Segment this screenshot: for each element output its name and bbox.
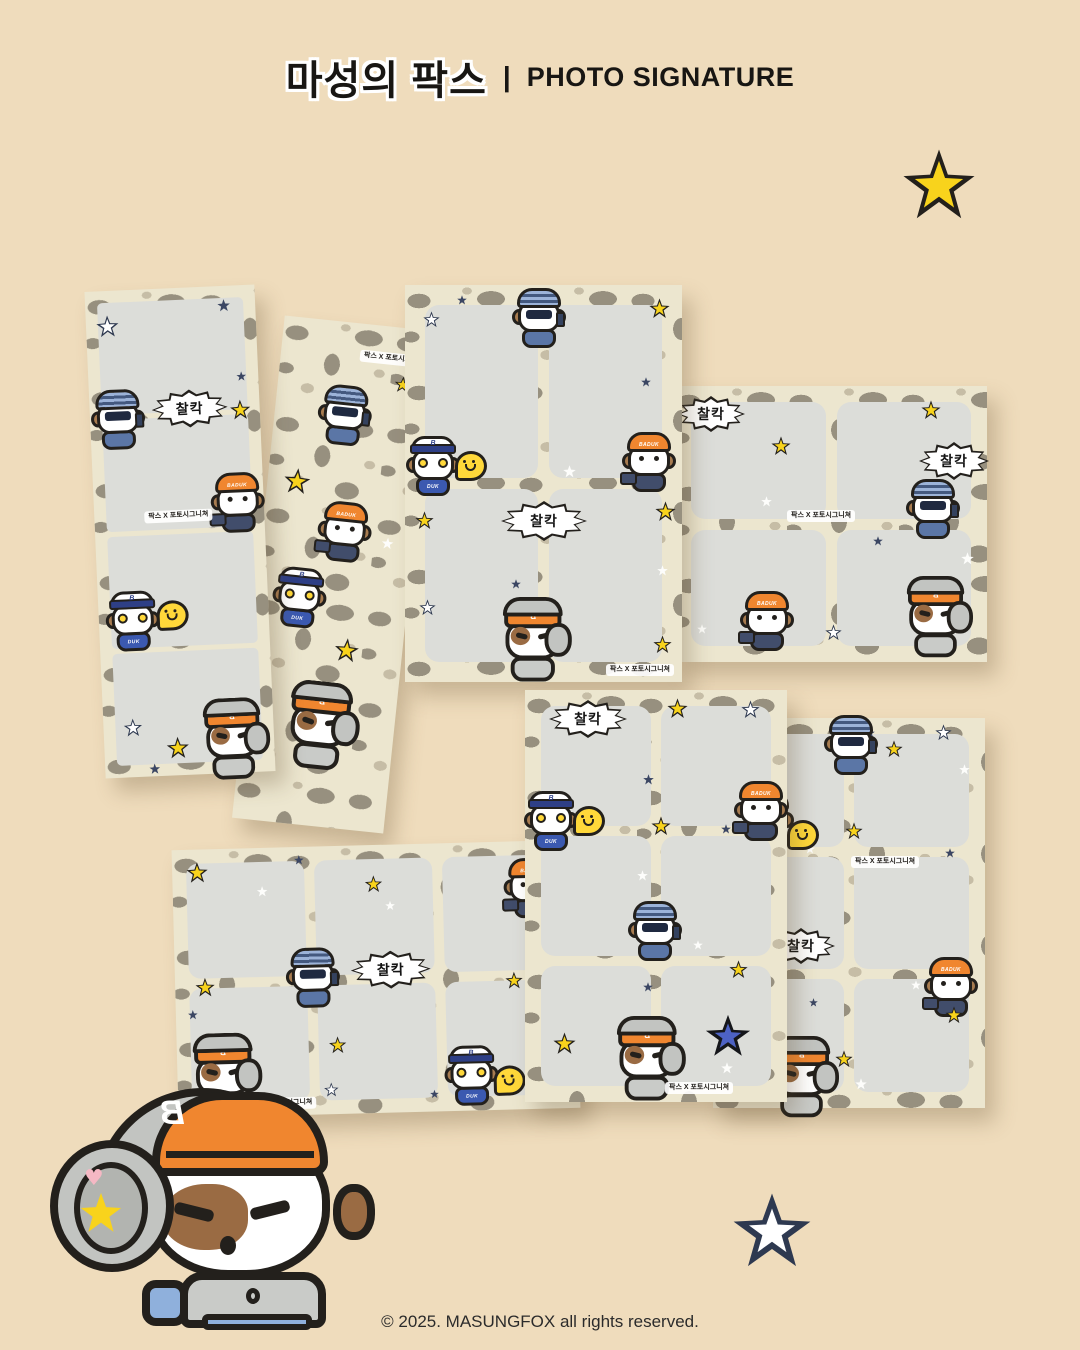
orange-cap-icon: B: [152, 1092, 328, 1176]
star-icon: [935, 724, 952, 741]
mouth: [220, 1236, 236, 1255]
star-icon: [741, 700, 760, 719]
photo-strip-front-card: 찰칵 BADUK 팍스 X 포토시그니쳐 BDUK B: [84, 285, 275, 779]
beanie-dog-character: [907, 478, 959, 542]
mini-star-icon: [149, 763, 160, 774]
dog-ear-icon: [333, 1184, 375, 1240]
shutter-bubble: 찰칵: [350, 950, 431, 990]
star-icon: [729, 960, 748, 979]
shutter-label: 찰칵: [940, 451, 968, 471]
star-icon: [845, 822, 863, 840]
collab-label: 팍스 X 포토시그니쳐: [665, 1082, 733, 1094]
star-icon: [123, 718, 143, 738]
headphone-dog-character: B: [903, 576, 968, 656]
hood-drawstring: [246, 1288, 260, 1304]
star-icon: [705, 1014, 751, 1058]
shutter-label: 찰칵: [574, 709, 602, 729]
star-icon: [553, 1032, 576, 1055]
baduk-dog-character: BADUK: [315, 498, 373, 567]
beanie-dog-character: [825, 714, 877, 778]
star-icon: [655, 501, 676, 522]
shutter-label: 찰칵: [787, 936, 815, 956]
title-korean: 마성의 팍스: [286, 48, 487, 106]
beanie-dog-character: [91, 387, 146, 453]
mini-star-icon: [457, 295, 467, 305]
cap-letter: B: [160, 1094, 185, 1133]
frame-6cut-landscape-card: BADUK 찰칵 B BDUK 팍스 X 포토시그니쳐: [172, 840, 581, 1118]
star-icon: [505, 971, 523, 989]
photo-cell: [854, 857, 969, 970]
star-icon: [653, 635, 672, 654]
duk-dog-character: BDUK: [106, 589, 161, 655]
star-icon: [835, 1050, 853, 1068]
shutter-bubble: 찰칵: [549, 700, 627, 738]
page-title: 마성의 팍스 | PHOTO SIGNATURE: [0, 48, 1080, 106]
star-icon: [333, 636, 360, 663]
collab-label: 팍스 X 포토시그니쳐: [606, 664, 674, 676]
shutter-label: 찰칵: [175, 398, 204, 419]
beanie-dog-character: [286, 946, 340, 1011]
star-icon: [921, 400, 941, 420]
smiley-bubble-icon: [787, 820, 819, 850]
headphone-dog-character: B: [280, 678, 359, 771]
star-icon: [825, 624, 842, 641]
smiley-bubble-icon: [455, 451, 487, 481]
star-icon: [667, 698, 688, 719]
star-icon: [902, 148, 976, 222]
baduk-dog-character: BADUK: [623, 431, 675, 495]
frame-6cut-portrait-card: 찰칵 BDUK BADUK B 팍스 X 포토시그니쳐: [525, 690, 787, 1102]
star-icon: [771, 436, 791, 456]
shutter-label: 찰칵: [697, 404, 725, 424]
star-icon: [423, 311, 440, 328]
star-icon: [732, 1192, 812, 1270]
star-icon: [229, 399, 251, 421]
star-icon: [415, 511, 434, 530]
frame-4cut-landscape-card: 찰칵 찰칵 팍스 X 포토시그니쳐 BADUK B: [675, 386, 987, 662]
duk-dog-character: BDUK: [407, 435, 459, 499]
star-icon: [885, 740, 903, 758]
star-icon: [651, 816, 671, 836]
baduk-dog-character: BADUK: [210, 470, 265, 536]
collab-label: 팍스 X 포토시그니쳐: [787, 510, 855, 522]
star-icon: [364, 875, 382, 893]
mascot-headphone-dog: B ♥: [52, 1088, 357, 1328]
star-icon: [649, 298, 670, 319]
star-icon: [282, 466, 312, 496]
star-icon: [166, 736, 190, 760]
collab-label: 팍스 X 포토시그니쳐: [851, 856, 919, 868]
star-icon: [328, 1036, 346, 1054]
headphone-earcup-icon: ♥: [50, 1140, 174, 1272]
shutter-bubble: 찰칵: [919, 442, 989, 480]
shutter-bubble: 찰칵: [677, 396, 745, 432]
frame-4cut-portrait-card: BDUK BADUK 찰칵 B 팍스 X 포토시그니쳐: [405, 285, 682, 682]
duk-dog-character: BDUK: [270, 564, 328, 633]
title-separator: |: [503, 61, 511, 93]
star-icon: [186, 861, 209, 884]
shutter-label: 찰칵: [377, 959, 405, 980]
duk-dog-character: BDUK: [525, 790, 577, 854]
baduk-dog-character: BADUK: [741, 590, 793, 654]
shutter-label: 찰칵: [530, 511, 558, 531]
poster-canvas: 마성의 팍스 | PHOTO SIGNATURE 팍스 X 포토시그니쳐 BAD…: [0, 0, 1080, 1350]
blue-pants: [202, 1314, 312, 1330]
shutter-bubble: 찰칵: [151, 388, 229, 429]
duk-dog-character: BDUK: [445, 1044, 499, 1109]
star-icon: [419, 599, 436, 616]
beanie-dog-character: [513, 287, 565, 351]
smiley-bubble-icon: [573, 806, 605, 836]
headphone-dog-character: B: [499, 597, 567, 680]
headphone-dog-character: B: [198, 697, 266, 780]
baduk-dog-character: BADUK: [735, 780, 787, 844]
beanie-dog-character: [315, 382, 373, 451]
star-icon: [95, 314, 119, 338]
mini-star-icon: [381, 537, 394, 550]
shutter-bubble: 찰칵: [501, 501, 587, 541]
title-english: PHOTO SIGNATURE: [527, 62, 795, 93]
star-icon: [945, 1006, 963, 1024]
star-icon: [195, 977, 216, 998]
beanie-dog-character: [629, 900, 681, 964]
heart-icon: ♥: [84, 1166, 104, 1191]
